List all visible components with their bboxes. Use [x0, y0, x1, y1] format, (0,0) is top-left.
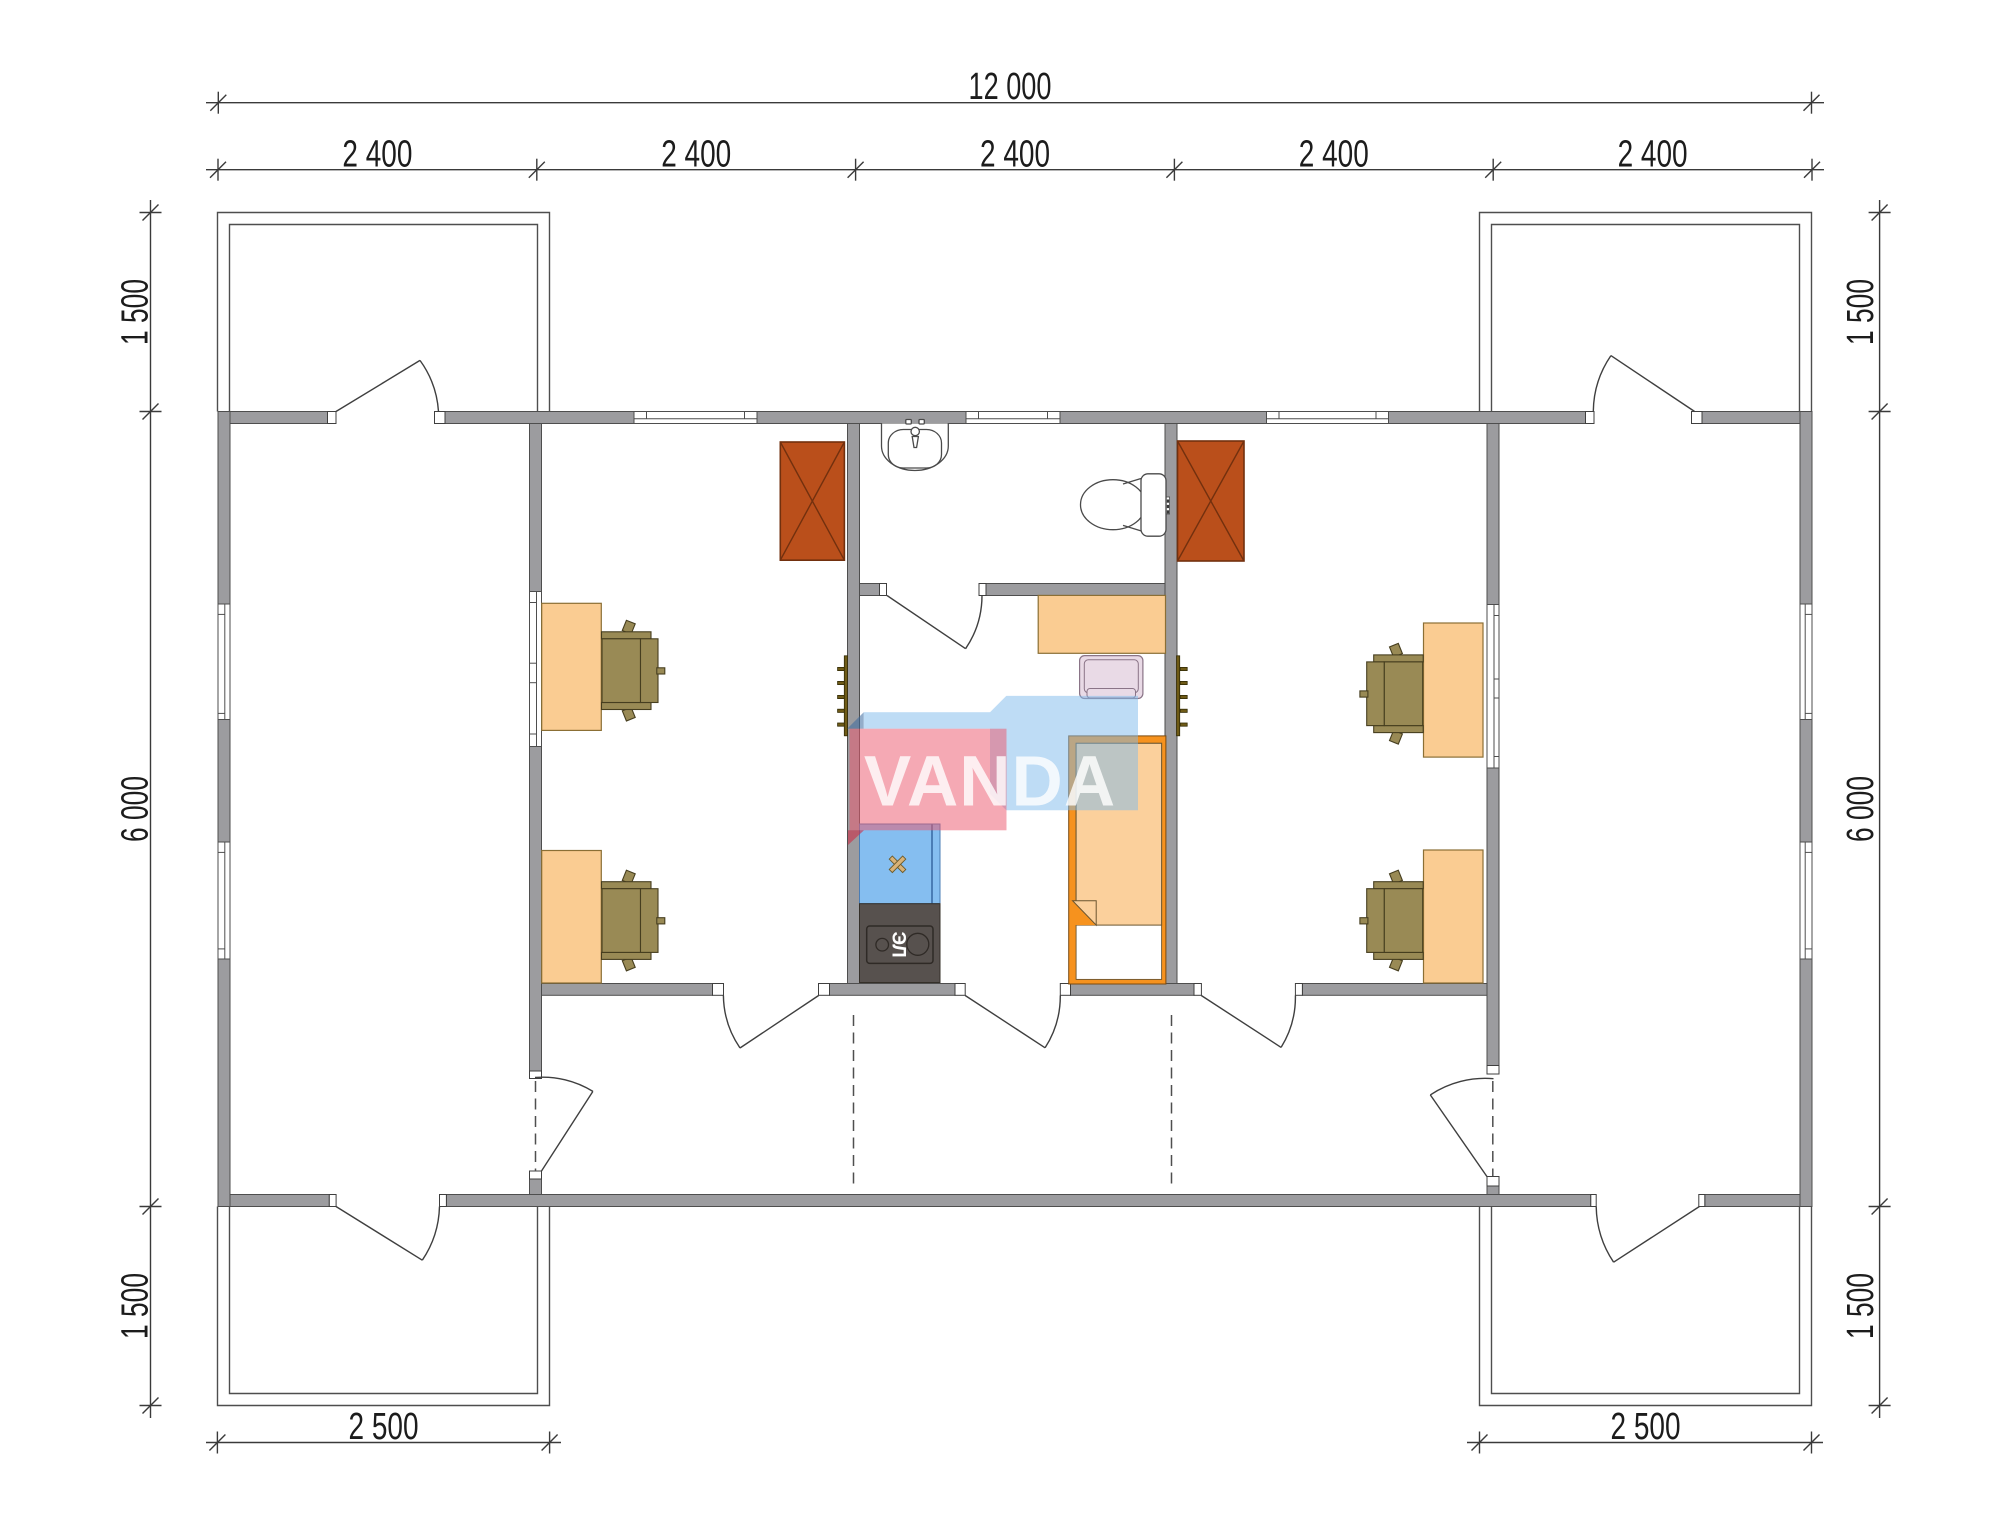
svg-text:1 500: 1 500: [1840, 279, 1882, 345]
svg-text:1 500: 1 500: [114, 279, 156, 345]
svg-text:2 400: 2 400: [1618, 134, 1688, 176]
svg-text:VANDA: VANDA: [864, 743, 1116, 822]
svg-text:ЭЛ: ЭЛ: [888, 931, 909, 957]
svg-text:2 400: 2 400: [1299, 134, 1369, 176]
svg-text:2 400: 2 400: [661, 134, 731, 176]
svg-text:12 000: 12 000: [969, 66, 1052, 108]
svg-text:2 400: 2 400: [980, 134, 1050, 176]
svg-text:2 400: 2 400: [342, 134, 412, 176]
svg-text:1 500: 1 500: [1840, 1273, 1882, 1339]
svg-text:6 000: 6 000: [114, 776, 156, 842]
svg-text:6 000: 6 000: [1840, 776, 1882, 842]
svg-text:1 500: 1 500: [114, 1273, 156, 1339]
svg-text:2 500: 2 500: [1611, 1406, 1681, 1448]
svg-text:2 500: 2 500: [349, 1406, 419, 1448]
